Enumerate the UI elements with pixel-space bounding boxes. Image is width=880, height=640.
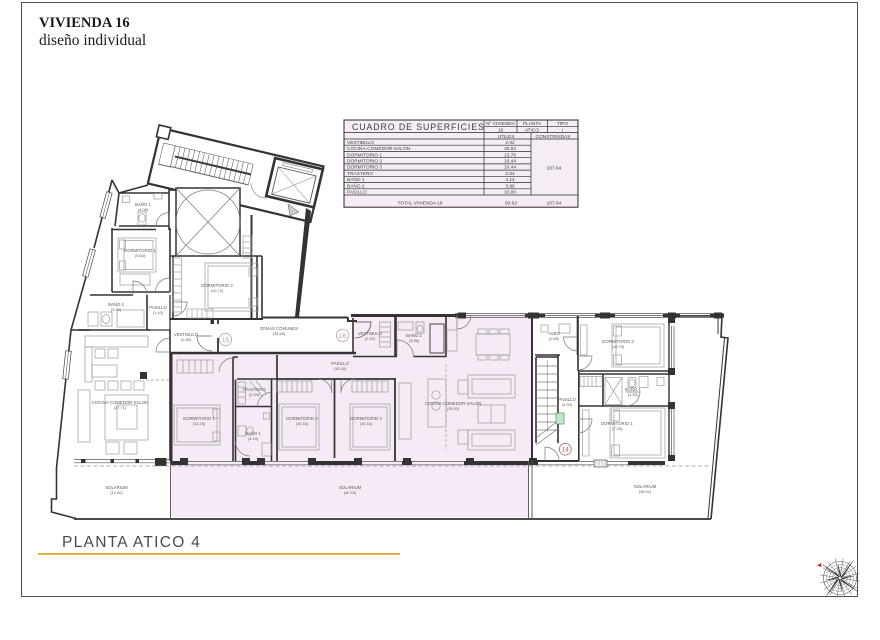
svg-text:14: 14	[562, 447, 570, 454]
svg-text:BAÑO 2: BAÑO 2	[347, 182, 365, 189]
svg-text:CONSTRUIDAS: CONSTRUIDAS	[536, 134, 571, 140]
svg-text:10.44: 10.44	[504, 165, 516, 171]
svg-text:(4.08): (4.08)	[138, 207, 149, 212]
svg-text:10.00: 10.00	[504, 190, 516, 196]
svg-text:CUADRO DE SUPERFICIES: CUADRO DE SUPERFICIES	[352, 122, 485, 132]
svg-text:10.44: 10.44	[504, 159, 516, 165]
svg-text:(4.30): (4.30)	[111, 307, 122, 312]
svg-text:(40.33): (40.33)	[344, 490, 357, 495]
svg-text:(3.96): (3.96)	[409, 338, 420, 343]
svg-text:(4.14): (4.14)	[248, 436, 259, 441]
svg-text:TOTAL VIVIENDA 16: TOTAL VIVIENDA 16	[398, 200, 443, 206]
svg-text:(9.64): (9.64)	[135, 253, 146, 258]
svg-text:TRASTERO: TRASTERO	[347, 171, 373, 177]
svg-text:DORMITORIO 2: DORMITORIO 2	[347, 159, 382, 165]
svg-text:DORMITORIO 3: DORMITORIO 3	[347, 165, 382, 171]
svg-text:Nº VIVIENDA: Nº VIVIENDA	[486, 121, 516, 127]
svg-text:(4.92): (4.92)	[562, 402, 573, 407]
svg-text:(10.75): (10.75)	[612, 344, 625, 349]
svg-text:VIVIENDA 16: VIVIENDA 16	[39, 15, 130, 31]
svg-text:(2.92): (2.92)	[365, 336, 376, 341]
svg-text:35.92: 35.92	[504, 146, 516, 152]
svg-text:BAÑO 1: BAÑO 1	[347, 176, 365, 183]
svg-text:COCINA-COMEDOR-SALON: COCINA-COMEDOR-SALON	[347, 146, 411, 152]
svg-text:(10.00): (10.00)	[334, 366, 347, 371]
svg-text:(0.95): (0.95)	[549, 336, 560, 341]
svg-text:93.62: 93.62	[505, 200, 517, 206]
svg-text:4.14: 4.14	[505, 177, 515, 183]
svg-text:(2.82): (2.82)	[181, 337, 192, 342]
svg-text:(38.51): (38.51)	[639, 489, 652, 494]
svg-text:diseño individual: diseño individual	[39, 32, 146, 49]
svg-text:(27.71): (27.71)	[114, 405, 127, 410]
svg-text:(10.44): (10.44)	[360, 421, 373, 426]
svg-text:(10.44): (10.44)	[296, 421, 309, 426]
svg-text:PASILLO: PASILLO	[347, 190, 367, 196]
svg-text:13.76: 13.76	[504, 152, 516, 158]
svg-text:(7.28): (7.28)	[612, 426, 623, 431]
svg-text:2.92: 2.92	[505, 140, 515, 146]
svg-text:(13.76): (13.76)	[193, 421, 206, 426]
svg-text:(10.72): (10.72)	[211, 288, 224, 293]
svg-text:VESTIBULO: VESTIBULO	[347, 140, 374, 146]
svg-text:ATICO: ATICO	[525, 128, 540, 134]
svg-text:PLANTA: PLANTA	[523, 121, 542, 127]
svg-text:3.96: 3.96	[505, 183, 515, 189]
svg-text:I: I	[562, 128, 563, 134]
svg-text:(4.50): (4.50)	[628, 392, 639, 397]
svg-text:(2.04): (2.04)	[249, 392, 260, 397]
svg-text:DORMITORIO 1: DORMITORIO 1	[347, 152, 382, 158]
svg-text:(1.43): (1.43)	[153, 310, 164, 315]
svg-text:15: 15	[222, 337, 230, 344]
svg-text:(35.56): (35.56)	[273, 331, 286, 336]
svg-text:(12.00): (12.00)	[110, 490, 123, 495]
svg-text:UTILES: UTILES	[498, 134, 515, 140]
svg-text:(35.92): (35.92)	[447, 406, 460, 411]
svg-text:2.04: 2.04	[505, 171, 515, 177]
svg-text:PLANTA ATICO 4: PLANTA ATICO 4	[62, 534, 201, 551]
svg-text:16: 16	[339, 333, 347, 340]
svg-text:107.64: 107.64	[547, 200, 562, 206]
svg-text:16: 16	[498, 128, 504, 134]
svg-text:107.64: 107.64	[547, 166, 562, 172]
svg-text:TIPO: TIPO	[557, 121, 568, 127]
